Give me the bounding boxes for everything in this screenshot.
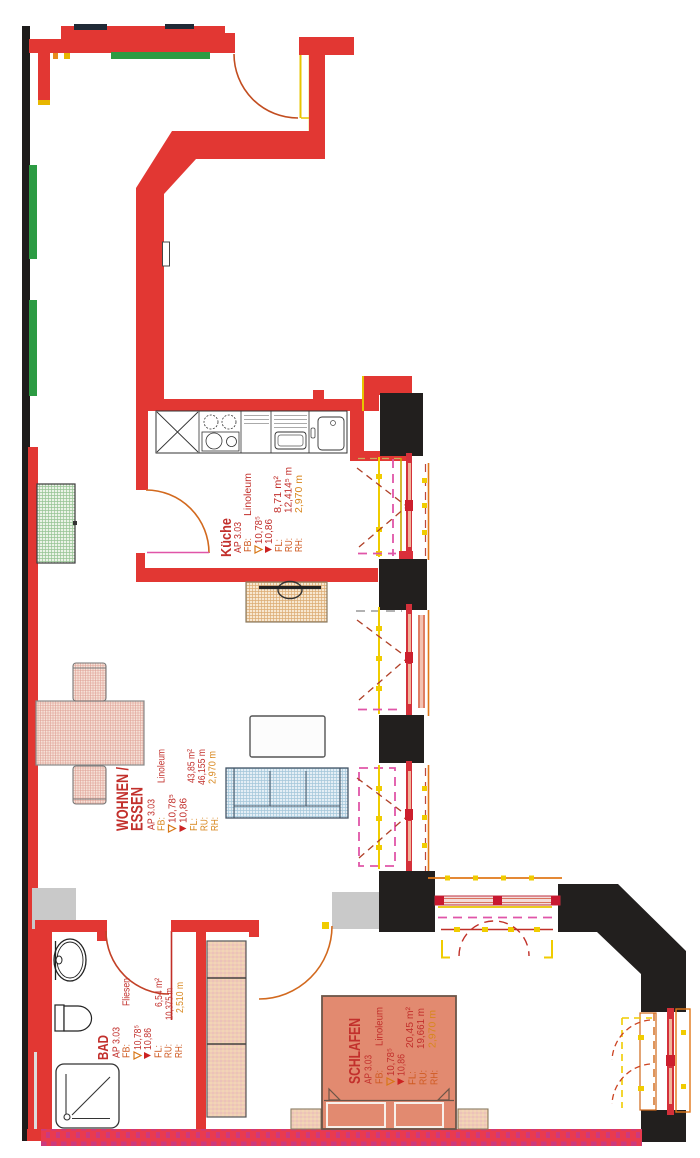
svg-text:RU:: RU: bbox=[164, 1044, 175, 1058]
svg-text:Fliesen: Fliesen bbox=[122, 978, 133, 1006]
svg-text:10,86: 10,86 bbox=[179, 798, 190, 823]
svg-text:2,510 m: 2,510 m bbox=[175, 982, 186, 1013]
svg-text:FB:: FB: bbox=[157, 817, 168, 831]
svg-text:Linoleum: Linoleum bbox=[157, 749, 168, 783]
svg-text:FB:: FB: bbox=[243, 538, 254, 552]
svg-text:Linoleum: Linoleum bbox=[375, 1007, 386, 1046]
svg-text:SCHLAFEN: SCHLAFEN bbox=[347, 1018, 364, 1084]
svg-text:FB:: FB: bbox=[375, 1070, 386, 1084]
svg-text:8,71 m²: 8,71 m² bbox=[273, 475, 284, 513]
svg-text:6,54 m²: 6,54 m² bbox=[154, 977, 165, 1007]
svg-text:FL:: FL: bbox=[189, 818, 200, 831]
svg-text:10,78⁵: 10,78⁵ bbox=[386, 1048, 397, 1076]
svg-text:2,970 m: 2,970 m bbox=[208, 751, 219, 784]
svg-text:2,970 m: 2,970 m bbox=[294, 475, 305, 513]
svg-text:RH:: RH: bbox=[430, 1070, 441, 1085]
svg-text:BAD: BAD bbox=[95, 1035, 112, 1060]
svg-text:43,85 m²: 43,85 m² bbox=[187, 748, 198, 783]
svg-text:12,414⁵ m: 12,414⁵ m bbox=[284, 467, 295, 513]
svg-text:RU:: RU: bbox=[200, 817, 211, 831]
svg-text:10,86: 10,86 bbox=[397, 1054, 408, 1076]
svg-text:10,78⁵: 10,78⁵ bbox=[168, 794, 179, 823]
svg-text:2,970 m: 2,970 m bbox=[428, 1010, 439, 1048]
svg-text:20,45 m²: 20,45 m² bbox=[405, 1006, 416, 1048]
svg-text:10,86: 10,86 bbox=[143, 1028, 154, 1050]
svg-text:FL:: FL: bbox=[408, 1071, 419, 1085]
svg-text:Linoleum: Linoleum bbox=[243, 473, 254, 516]
svg-text:AP 3.03: AP 3.03 bbox=[364, 1055, 375, 1084]
svg-text:10,375 m: 10,375 m bbox=[165, 988, 176, 1020]
svg-text:46,155 m: 46,155 m bbox=[197, 749, 208, 785]
svg-text:RH:: RH: bbox=[294, 538, 305, 552]
svg-text:RU:: RU: bbox=[419, 1070, 430, 1085]
svg-text:19,661 m: 19,661 m bbox=[416, 1008, 427, 1049]
svg-text:ESSEN: ESSEN bbox=[128, 787, 147, 831]
svg-text:RH:: RH: bbox=[174, 1044, 185, 1058]
svg-text:RH:: RH: bbox=[210, 817, 221, 831]
svg-text:FB:: FB: bbox=[122, 1044, 133, 1058]
